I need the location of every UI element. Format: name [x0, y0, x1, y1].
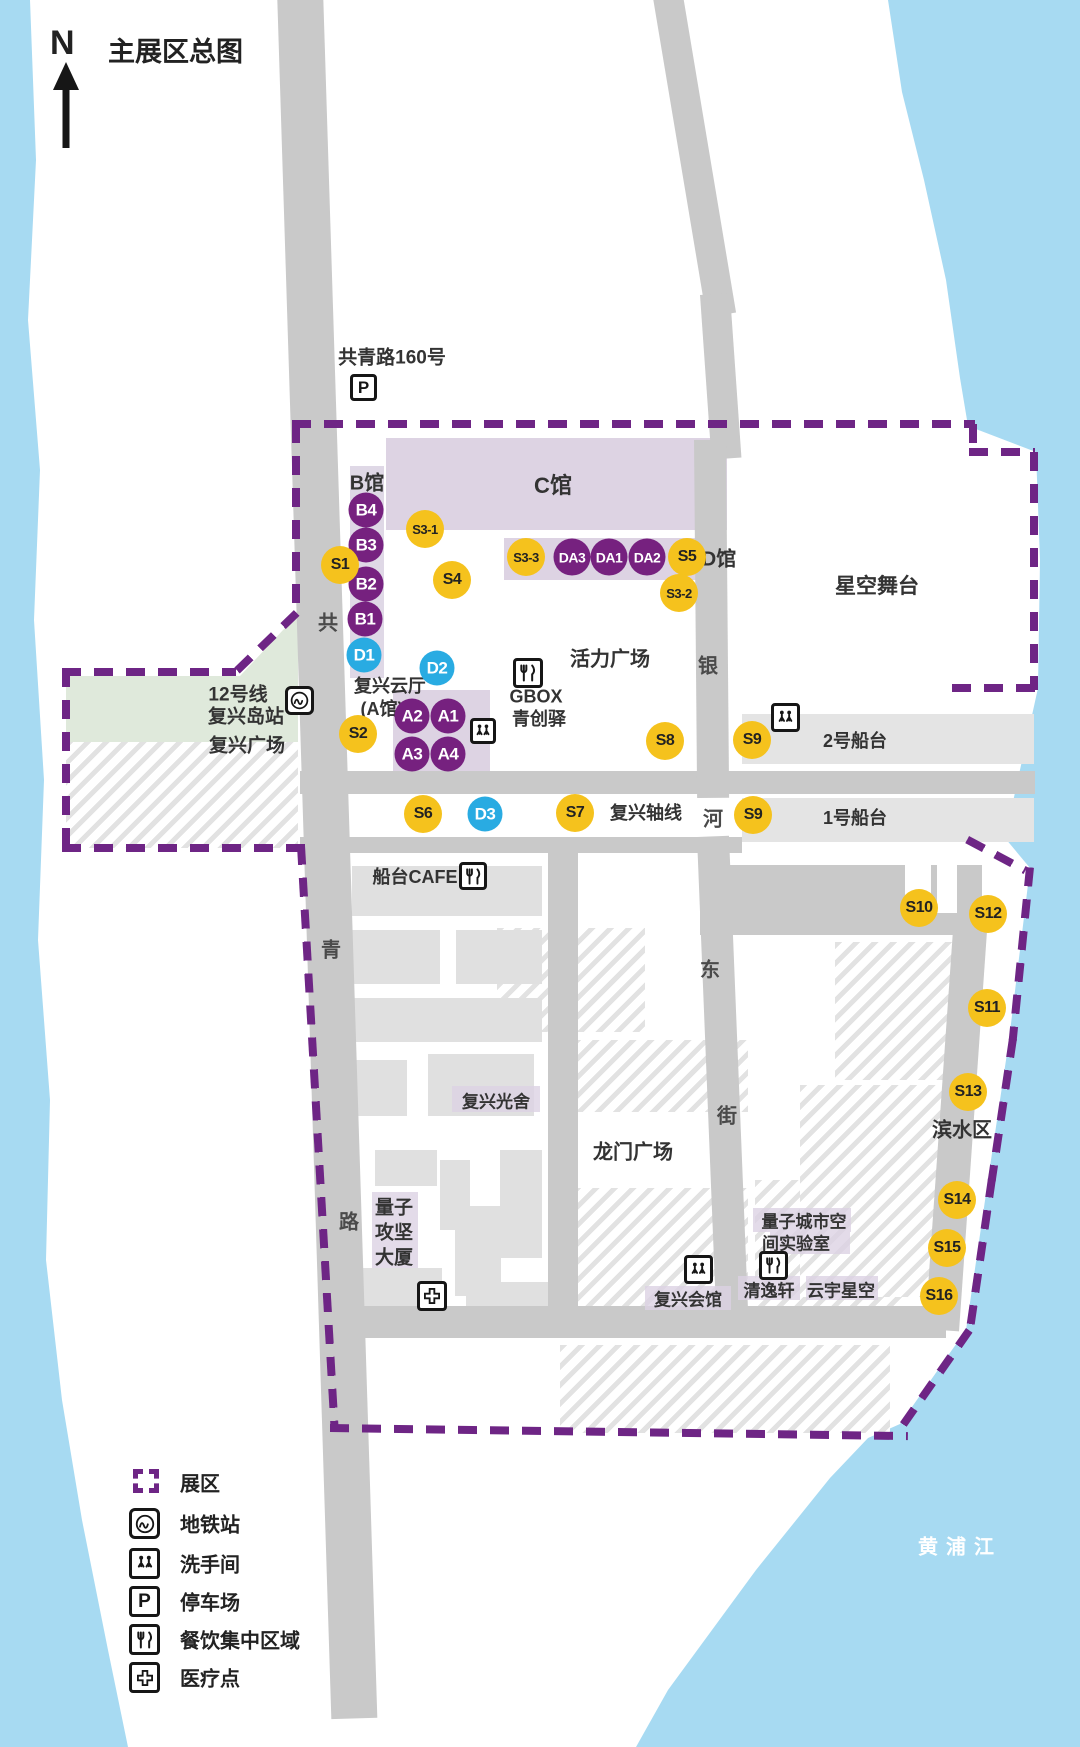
restroom-glyph [689, 1261, 708, 1279]
label-shipway-2: 2号船台 [823, 727, 887, 753]
label-hall-d: D馆 [702, 543, 736, 572]
marker-s11: S11 [968, 989, 1006, 1027]
road-fuxing-axis-north [300, 771, 1035, 794]
exhibition-area-icon [133, 1469, 159, 1493]
street-char-jie: 街 [717, 1100, 737, 1129]
marker-s16: S16 [920, 1277, 958, 1315]
legend-label-medical: 医疗点 [180, 1663, 240, 1692]
metro-glyph [134, 1513, 156, 1535]
label-light-house: 复兴光舍 [462, 1088, 530, 1113]
marker-a3: A3 [395, 737, 430, 772]
marker-s3-3: S3-3 [507, 538, 545, 576]
boundary-segment [62, 668, 236, 676]
label-yunyu-star: 云宇星空 [807, 1277, 875, 1302]
building [456, 930, 542, 984]
label-metro-station: 复兴岛站 [208, 702, 284, 729]
label-shipway-1: 1号船台 [823, 804, 887, 830]
medical-cross-glyph [422, 1286, 442, 1306]
label-cafe: 船台CAFE [373, 863, 458, 889]
marker-s3-2: S3-2 [660, 574, 698, 612]
hatch-area [560, 1345, 890, 1433]
label-quantum-tower-1: 量子 [375, 1193, 413, 1220]
building [500, 1150, 542, 1258]
medical-icon [417, 1281, 447, 1311]
label-star-stage: 星空舞台 [835, 570, 919, 600]
legend-label-exhibition-area: 展区 [180, 1468, 220, 1497]
boundary-segment [969, 448, 1035, 456]
restroom-glyph [135, 1554, 155, 1573]
marker-a2: A2 [395, 699, 430, 734]
marker-s15: S15 [928, 1229, 966, 1267]
dining-icon [129, 1624, 160, 1655]
street-char-he: 河 [703, 803, 723, 832]
restroom-glyph [776, 709, 795, 727]
exhibition-map: P 主展区总图 N 共青路160号 B馆 C馆 D馆 星空舞台 活力广场 复兴云… [0, 0, 1080, 1747]
restroom-glyph [474, 723, 492, 740]
road-yinhe-street-upper [694, 440, 729, 798]
boundary-segment [62, 668, 70, 852]
road-north-diagonal-2 [700, 293, 741, 460]
road-gongqing-lu [277, 0, 377, 1719]
label-hall-b: B馆 [350, 467, 384, 496]
parking-icon: P [350, 374, 377, 401]
building [352, 930, 440, 984]
marker-da3: DA3 [554, 539, 591, 576]
road-fuxing-axis-south [300, 837, 742, 853]
metro-icon [129, 1508, 160, 1539]
marker-s6: S6 [404, 795, 442, 833]
restroom-icon [470, 718, 496, 744]
legend-label-parking: 停车场 [180, 1587, 240, 1616]
boundary-segment [952, 684, 1036, 692]
street-char-yin: 银 [698, 650, 718, 679]
marker-s9-north: S9 [733, 721, 771, 759]
label-gbox-sub: 青创驿 [512, 705, 566, 731]
marker-s1: S1 [321, 546, 359, 584]
parking-icon: P [129, 1586, 160, 1617]
road-north-diagonal [652, 0, 736, 317]
label-address: 共青路160号 [338, 343, 446, 370]
marker-da1: DA1 [591, 539, 628, 576]
boundary-segment [292, 420, 975, 428]
label-fuxing-plaza: 复兴广场 [209, 731, 285, 758]
restroom-icon [684, 1255, 713, 1284]
marker-d2: D2 [420, 651, 455, 686]
label-waterfront: 滨水区 [932, 1114, 992, 1143]
north-letter: N [50, 24, 75, 63]
road-mid-vertical [548, 852, 578, 1312]
marker-da2: DA2 [629, 539, 666, 576]
street-char-dong: 东 [700, 954, 720, 983]
dining-glyph [518, 663, 538, 683]
metro-icon [285, 686, 314, 715]
building [352, 998, 542, 1042]
parking-letter: P [358, 378, 369, 398]
parking-letter: P [138, 1591, 151, 1613]
marker-s12: S12 [969, 895, 1007, 933]
restroom-icon [771, 703, 800, 732]
metro-glyph [289, 690, 310, 711]
label-longmen-plaza: 龙门广场 [593, 1136, 673, 1165]
legend-label-metro: 地铁站 [180, 1509, 240, 1538]
street-char-qing: 青 [321, 934, 341, 963]
medical-cross-glyph [135, 1668, 155, 1688]
boundary-segment [292, 424, 300, 614]
label-hall-c: C馆 [534, 468, 572, 500]
marker-s5: S5 [668, 538, 706, 576]
marker-s10: S10 [900, 889, 938, 927]
marker-d1: D1 [347, 638, 382, 673]
label-quantum-tower-2: 攻坚 [375, 1218, 413, 1245]
label-quantum-tower-3: 大厦 [375, 1243, 413, 1270]
marker-b4: B4 [349, 493, 384, 528]
hatch-area [835, 942, 957, 1080]
page-title: 主展区总图 [108, 30, 243, 69]
restroom-icon [129, 1548, 160, 1579]
river-name: 黄浦江 [918, 1531, 1002, 1560]
label-qingyi-xuan: 清逸轩 [744, 1277, 795, 1302]
boundary-segment [1030, 452, 1038, 690]
medical-icon [129, 1662, 160, 1693]
legend-label-dining: 餐饮集中区域 [180, 1625, 300, 1654]
marker-s9-south: S9 [734, 796, 772, 834]
marker-s13: S13 [949, 1073, 987, 1111]
boundary-segment [62, 844, 306, 852]
label-quantum-lab-2: 间实验室 [762, 1230, 830, 1255]
street-char-lu: 路 [339, 1206, 359, 1235]
label-fuxing-axis: 复兴轴线 [610, 799, 682, 825]
label-vitality-plaza: 活力广场 [570, 643, 650, 672]
marker-s2: S2 [339, 715, 377, 753]
marker-s7: S7 [556, 794, 594, 832]
marker-s3-1: S3-1 [406, 510, 444, 548]
label-fuxing-hall: 复兴会馆 [654, 1286, 722, 1311]
pier-pillar [937, 851, 957, 913]
marker-s14: S14 [938, 1181, 976, 1219]
dining-glyph [764, 1256, 783, 1275]
marker-s4: S4 [433, 561, 471, 599]
dining-icon [459, 862, 487, 890]
marker-a4: A4 [431, 737, 466, 772]
north-arrow-icon [46, 62, 86, 150]
building [375, 1150, 437, 1186]
dining-glyph [464, 867, 483, 886]
marker-d3: D3 [468, 797, 503, 832]
shipway-1-strip [742, 798, 1034, 842]
dining-icon [513, 658, 543, 688]
street-char-gong: 共 [318, 607, 338, 636]
hatch-area [66, 742, 298, 848]
marker-b1: B1 [348, 602, 383, 637]
marker-s8: S8 [646, 722, 684, 760]
marker-a1: A1 [431, 699, 466, 734]
legend-label-restroom: 洗手间 [180, 1549, 240, 1578]
dining-glyph [135, 1630, 155, 1650]
